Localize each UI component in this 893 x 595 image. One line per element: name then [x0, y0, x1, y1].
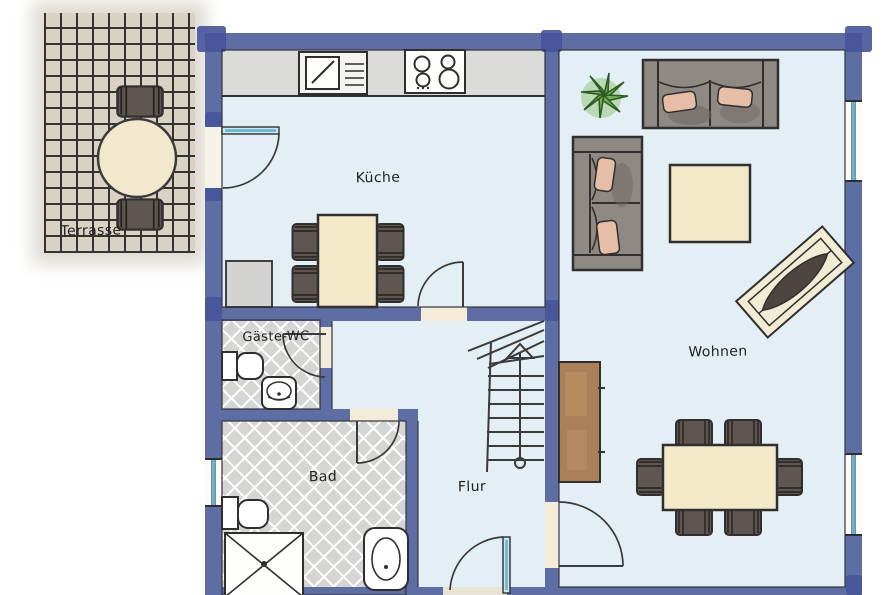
sofa	[573, 137, 642, 270]
kitchen-sink	[299, 52, 367, 94]
room-label-wohnen: Wohnen	[688, 343, 748, 360]
toilet	[222, 352, 263, 380]
room-label-flur: Flur	[458, 479, 486, 495]
lounger	[736, 226, 854, 337]
room-label-terrasse: Terrasse	[60, 222, 121, 239]
dining-table	[663, 445, 777, 510]
kitchen-cabinet	[226, 261, 272, 307]
room-label-kueche: Küche	[356, 170, 401, 187]
hand-basin	[262, 377, 296, 409]
stairs	[468, 321, 544, 472]
coffee-table	[670, 165, 750, 242]
kitchen-table	[318, 215, 377, 307]
room-label-bad: Bad	[309, 469, 338, 485]
toilet	[222, 497, 268, 529]
plant	[581, 73, 628, 118]
terrace-table	[98, 119, 176, 197]
room-label-gaeste-wc: Gäste-WC	[242, 329, 309, 345]
door-arc	[222, 127, 623, 593]
floor-plan: Terrasse Küche Gäste-WC Bad Flur Wohnen	[0, 0, 893, 595]
stove	[405, 50, 465, 93]
hand-basin	[364, 528, 408, 590]
shower	[225, 533, 303, 595]
sideboard	[559, 362, 605, 482]
sofa	[643, 60, 778, 128]
plan-drawing	[0, 0, 893, 595]
